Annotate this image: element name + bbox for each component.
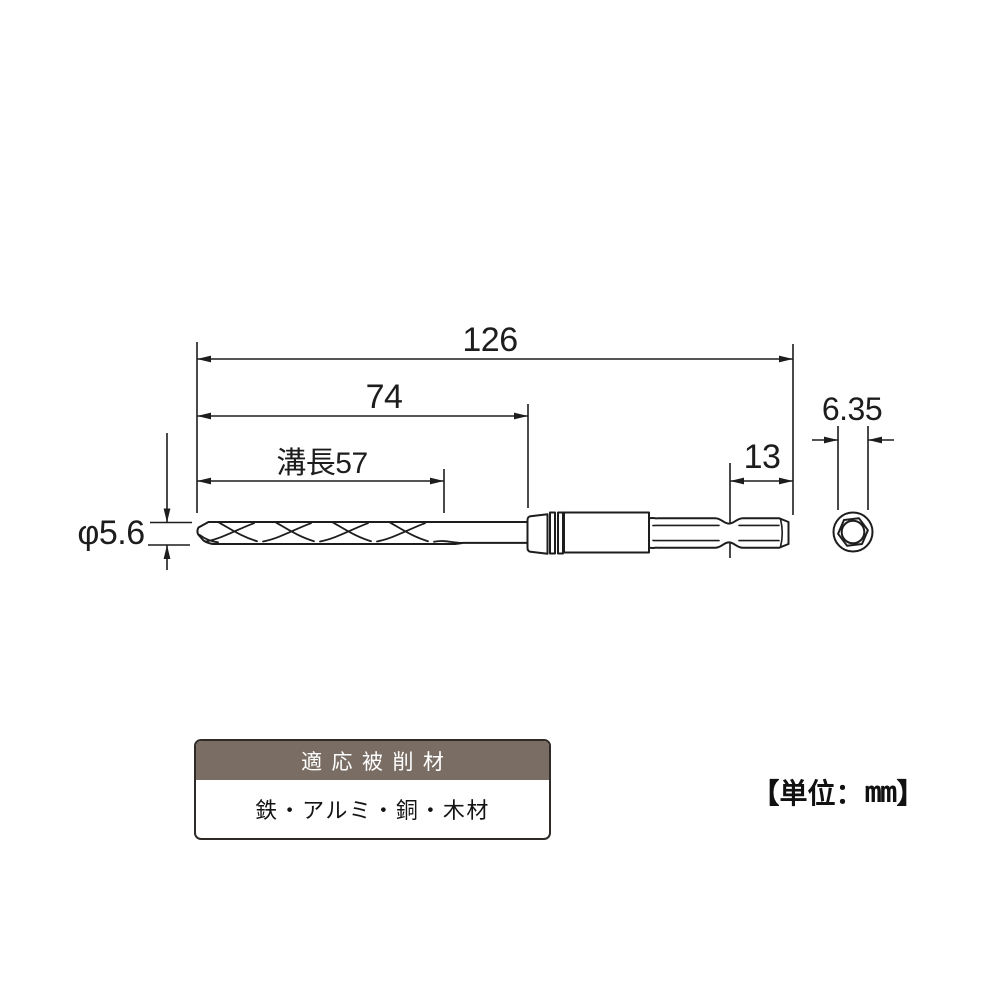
collar-taper <box>528 514 548 554</box>
flute-spiral <box>200 523 463 543</box>
dimension-label-diameter: φ5.6 <box>77 514 144 552</box>
unit-note-value: mm <box>865 775 896 809</box>
dimension-body-length: 74 <box>197 378 528 508</box>
arrowhead-right <box>868 437 882 444</box>
end-view-inner-circle <box>842 521 865 544</box>
dimension-overall-length: 126 <box>197 321 793 515</box>
arrowhead-left <box>197 478 211 485</box>
materials-table: 適応被削材 鉄・アルミ・銅・木材 <box>194 739 551 840</box>
dimension-label-flute: 溝長57 <box>276 447 367 480</box>
arrowhead-up <box>164 545 171 559</box>
drill-bit-side-view <box>197 513 788 554</box>
arrowhead-right <box>430 478 444 485</box>
materials-table-header: 適応被削材 <box>196 741 549 780</box>
arrowhead-left <box>824 437 838 444</box>
hex-shank-outline <box>649 518 789 548</box>
collar-sleeve <box>564 513 649 553</box>
unit-note-open-bracket: 【 <box>752 772 780 812</box>
dimension-label-hex-width: 6.35 <box>822 391 882 427</box>
drill-bit-dimension-diagram: 126 74 溝長57 13 <box>0 0 1000 1000</box>
collar-ring-1 <box>550 513 555 554</box>
arrowhead-down <box>164 509 171 523</box>
arrowhead-left <box>730 478 744 485</box>
arrowhead-left <box>197 356 211 363</box>
dimension-label-overall: 126 <box>462 321 517 359</box>
hex-shank-end-view <box>834 513 873 552</box>
arrowhead-right <box>514 413 528 420</box>
arrowhead-left <box>197 413 211 420</box>
dimension-flute-length: 溝長57 <box>197 447 444 513</box>
materials-table-value: 鉄・アルミ・銅・木材 <box>196 780 549 838</box>
body-bottom-edge <box>213 543 528 544</box>
arrowhead-right <box>779 356 793 363</box>
dimension-label-body: 74 <box>366 378 403 416</box>
arrowhead-right <box>779 478 793 485</box>
dimension-diameter: φ5.6 <box>77 433 192 570</box>
unit-note: 【単位：mm】 <box>728 772 948 812</box>
dimension-hex-width: 6.35 <box>812 391 894 510</box>
unit-note-close-bracket: 】 <box>896 772 924 812</box>
diagram-canvas: 126 74 溝長57 13 <box>0 0 1000 1000</box>
collar-ring-2 <box>558 513 563 554</box>
dimension-label-hex-insert: 13 <box>744 438 781 476</box>
unit-note-label: 単位： <box>780 772 864 812</box>
